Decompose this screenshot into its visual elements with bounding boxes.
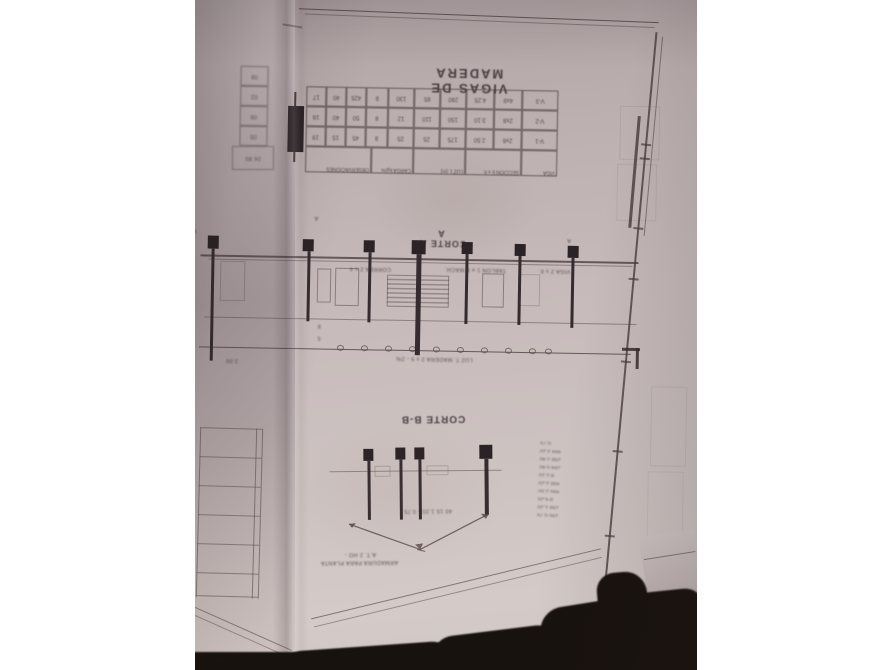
main-sheet-content: VIGAS DE MADERA VIGASECCION b x hLUZ L (… <box>195 0 697 670</box>
spec-notes-list: 2x6 0.752x8 1.20d 4.254x6 2.504x8 3.20d … <box>537 436 608 519</box>
bb-post-cap <box>363 449 373 461</box>
photo-of-blueprints: 05090208 26 80 VIGAS DE MADERA <box>195 0 697 670</box>
page: 05090208 26 80 VIGAS DE MADERA <box>0 0 893 670</box>
faint-cell <box>616 164 657 222</box>
corte-bb-group: CORTE B-B 40 15 1.20 - 0.75 <box>195 0 690 670</box>
dark-surface <box>633 587 697 670</box>
bb-box <box>426 465 448 475</box>
corte-bb-label: CORTE B-B <box>396 413 470 425</box>
bb-caption-2: ARMADURA PARA PLANTA <box>309 559 409 566</box>
faint-cell <box>650 386 687 467</box>
bb-ground-line <box>330 470 502 473</box>
bb-post-cap <box>395 448 405 460</box>
paper-piece-line <box>644 551 696 560</box>
faint-cell <box>619 106 660 161</box>
bb-box <box>374 466 390 477</box>
bb-post-cap <box>479 445 492 459</box>
bb-post-cap <box>414 447 424 459</box>
bb-caption-1: A.T. 2 HO - <box>317 551 403 558</box>
corner-mark-stub <box>636 348 639 369</box>
